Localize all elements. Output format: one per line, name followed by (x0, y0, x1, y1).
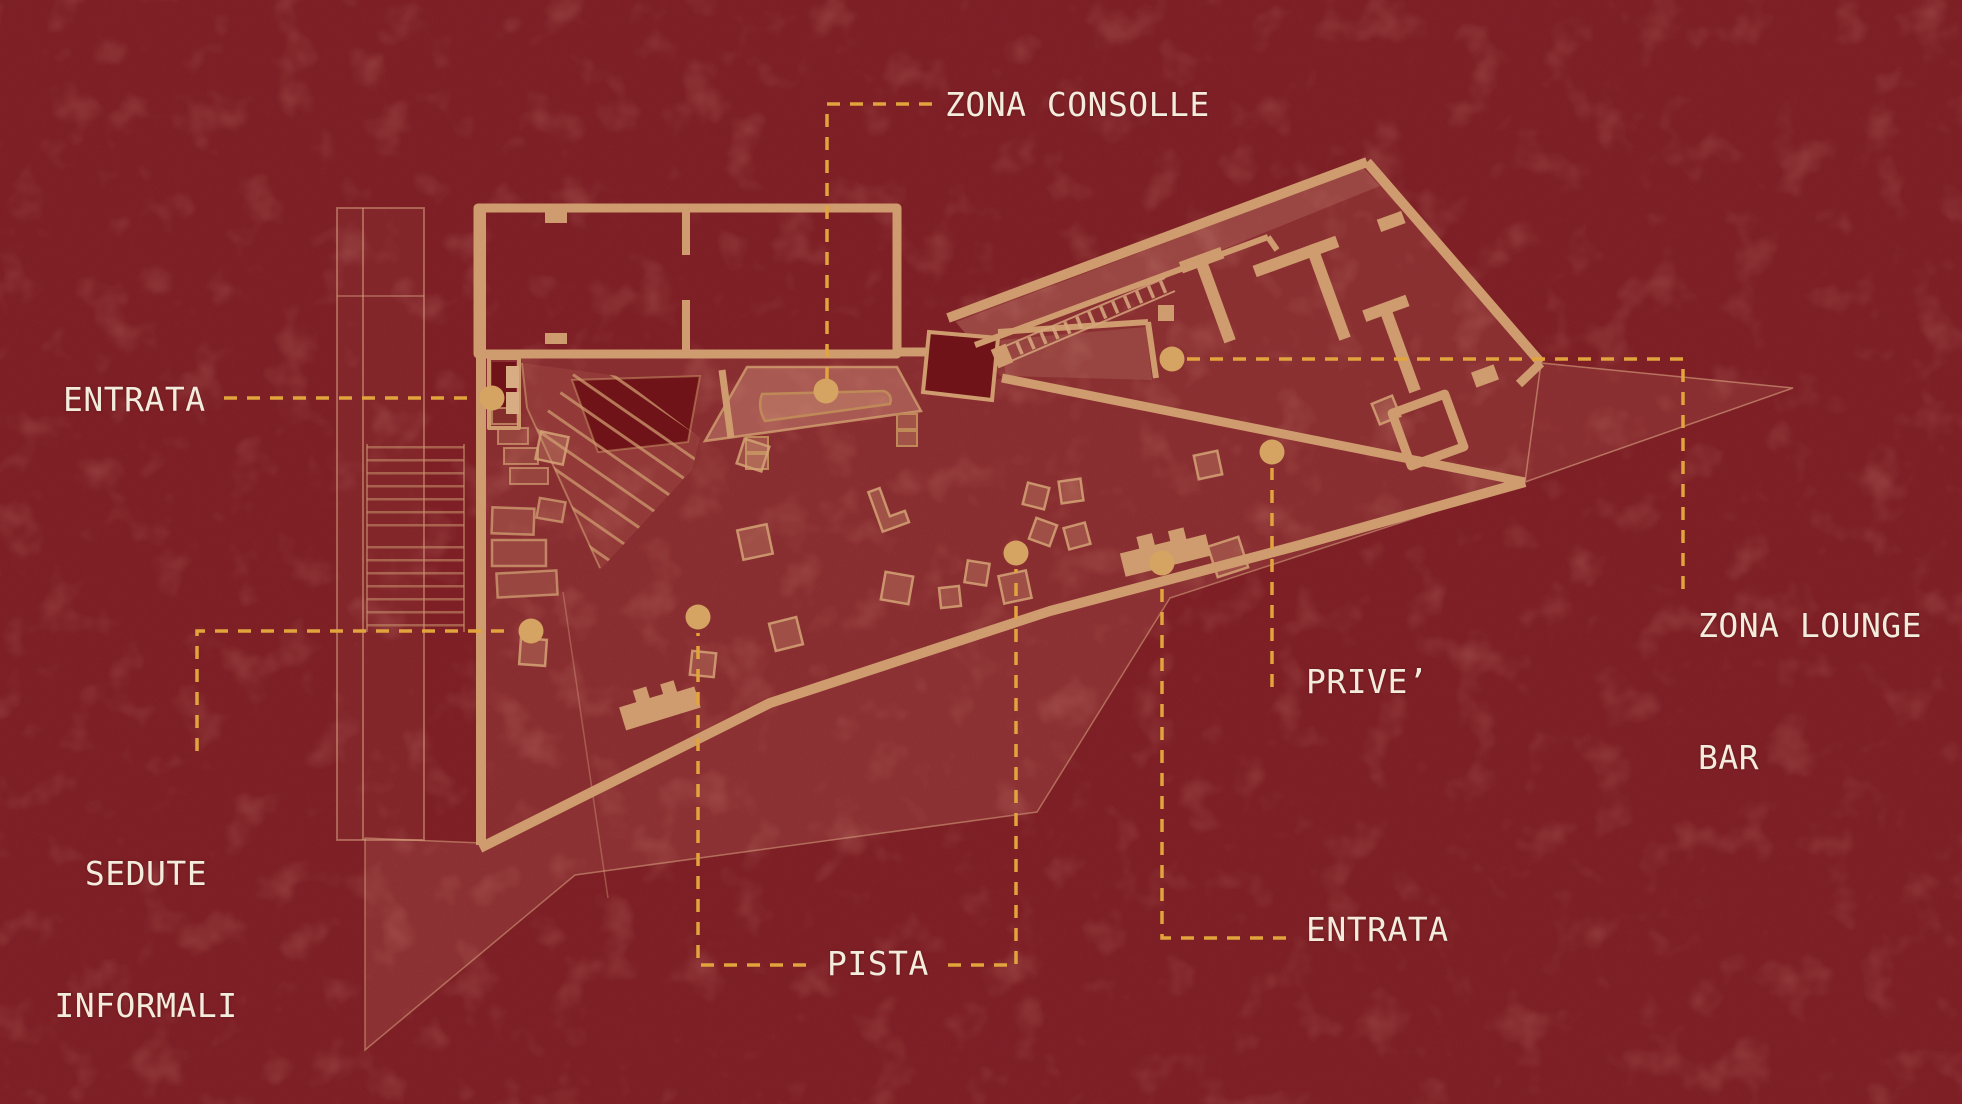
marker-entrata-left (480, 386, 505, 411)
label-pista: PISTA (827, 942, 929, 986)
marker-pista-east (1004, 541, 1029, 566)
label-lounge-line1: ZONA LOUNGE (1698, 604, 1922, 648)
floor-plan-page: ZONA CONSOLLE ENTRATA SEDUTE INFORMALI P… (0, 0, 1962, 1104)
marker-prive (1260, 440, 1285, 465)
label-sedute-line1: SEDUTE (38, 852, 254, 896)
label-prive: PRIVE’ (1306, 660, 1428, 704)
overlay-grain-texture (0, 0, 1962, 1104)
marker-pista-west (686, 605, 711, 630)
marker-zona-lounge-bar (1160, 347, 1185, 372)
label-entrata-south: ENTRATA (1306, 908, 1449, 952)
floor-plan-canvas (0, 0, 1962, 1104)
marker-sedute-informali (519, 619, 544, 644)
label-zona-lounge-bar: ZONA LOUNGE BAR (1698, 516, 1922, 868)
label-sedute-line2: INFORMALI (38, 984, 254, 1028)
label-lounge-line2: BAR (1698, 736, 1922, 780)
marker-zona-consolle (814, 379, 839, 404)
label-zona-consolle: ZONA CONSOLLE (945, 83, 1210, 127)
label-entrata-left: ENTRATA (63, 378, 206, 422)
label-sedute-informali: SEDUTE INFORMALI (38, 764, 254, 1104)
marker-entrata-south (1150, 551, 1175, 576)
